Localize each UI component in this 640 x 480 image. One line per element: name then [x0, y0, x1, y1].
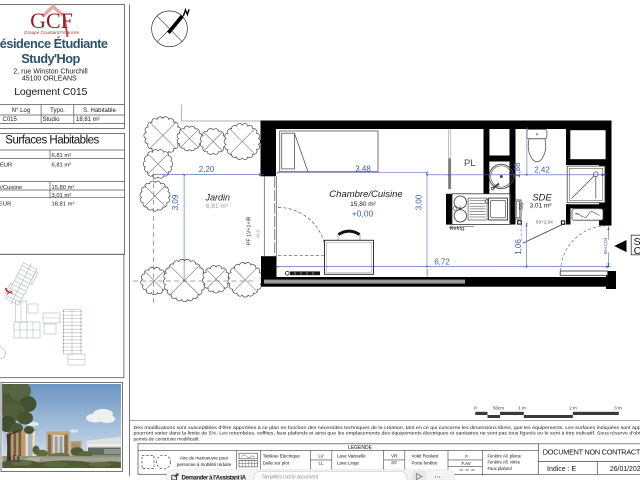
svg-text:Dalle sur plot: Dalle sur plot: [263, 460, 290, 465]
svg-text:pourront varier dans la limite: pourront varier dans la limite de 5%. Le…: [134, 431, 640, 436]
svg-text:Chambre/Cuisine: Chambre/Cuisine: [329, 189, 402, 200]
svg-text:6,81 m²: 6,81 m²: [52, 162, 72, 168]
svg-text:Des modifications sont suscept: Des modifications sont susceptibles d'êt…: [134, 425, 640, 430]
svg-text:C015: C015: [3, 117, 18, 123]
svg-text:Logement C015: Logement C015: [14, 86, 87, 98]
svg-text:1,06: 1,06: [514, 239, 523, 255]
svg-text:+0,00: +0,00: [352, 209, 374, 219]
svg-text:Jardin: Jardin: [205, 193, 231, 203]
svg-text:3,01 m²: 3,01 m²: [52, 193, 72, 199]
svg-text:93+2,04: 93+2,04: [603, 237, 608, 254]
svg-text:Volet Roulant: Volet Roulant: [412, 454, 440, 459]
svg-text:1 m: 1 m: [518, 406, 526, 411]
svg-text:DOCUMENT NON CONTRACTUEL: DOCUMENT NON CONTRACTUEL: [543, 448, 640, 457]
svg-text:Alt:0: Alt:0: [256, 229, 261, 238]
svg-text:3,09: 3,09: [171, 194, 180, 210]
svg-text:F.AV: F.AV: [462, 461, 471, 466]
svg-text:permis de construire modificat: permis de construire modificatif.: [134, 437, 200, 442]
svg-text:26/01/2024: 26/01/2024: [610, 466, 640, 473]
svg-text:LV: LV: [318, 454, 323, 459]
svg-text:3 m: 3 m: [614, 406, 622, 411]
svg-text:Studio: Studio: [43, 117, 61, 123]
svg-text:18,81 m²: 18,81 m²: [52, 202, 75, 208]
svg-text:3,48: 3,48: [355, 165, 371, 174]
svg-text:Lave Linge: Lave Linge: [337, 460, 360, 465]
svg-text:LL: LL: [318, 460, 324, 465]
svg-text:Groupe Coustant Finances: Groupe Coustant Finances: [24, 30, 80, 35]
svg-text:45100 ORLEANS: 45100 ORLEANS: [22, 76, 77, 83]
svg-text:83+2,04: 83+2,04: [536, 219, 553, 224]
svg-text:Typo.: Typo.: [50, 108, 65, 114]
svg-text:Aire de manoeuvre pour: Aire de manoeuvre pour: [180, 455, 229, 460]
svg-text:Chambre/Cuisine: Chambre/Cuisine: [0, 185, 22, 191]
svg-text:1,88: 1,88: [513, 162, 522, 178]
svg-text:15,80 m²: 15,80 m²: [52, 185, 75, 191]
svg-text:Fenêtre All. vitrée: Fenêtre All. vitrée: [488, 459, 521, 464]
svg-text:2,20: 2,20: [199, 165, 215, 174]
svg-text:...: ...: [435, 471, 441, 480]
svg-text:Fenêtre All. pleine: Fenêtre All. pleine: [488, 454, 522, 459]
svg-text:Résidence Étudiante: Résidence Étudiante: [0, 36, 108, 51]
svg-text:Simplifiez-moi le document: Simplifiez-moi le document: [262, 475, 318, 480]
svg-text:6,81 m²: 6,81 m²: [206, 203, 229, 210]
svg-text:Tableau Electrique: Tableau Electrique: [263, 454, 301, 459]
svg-text:3,00: 3,00: [415, 194, 424, 210]
svg-text:personne à mobilité réduite: personne à mobilité réduite: [177, 462, 232, 467]
svg-text:TOTAL EXTERIEUR: TOTAL EXTERIEUR: [0, 162, 12, 168]
svg-text:TOTAL INTERIEUR: TOTAL INTERIEUR: [0, 202, 11, 208]
svg-text:Porte fenêtre: Porte fenêtre: [412, 460, 439, 465]
svg-text:LEGENDE: LEGENDE: [348, 445, 373, 451]
svg-text:2,42: 2,42: [534, 166, 550, 175]
svg-text:18,81 m²: 18,81 m²: [76, 117, 100, 123]
svg-text:0: 0: [474, 406, 477, 411]
svg-text:F: F: [465, 454, 468, 459]
svg-text:PL: PL: [464, 158, 476, 169]
svg-text:6,81 m²: 6,81 m²: [52, 153, 72, 159]
svg-text:PF: PF: [391, 460, 397, 465]
svg-text:3,01 m²: 3,01 m²: [529, 203, 552, 210]
svg-text:CUI: CUI: [453, 207, 462, 213]
svg-text:C015: C015: [634, 245, 640, 257]
svg-text:15,80 m²: 15,80 m²: [350, 201, 376, 208]
svg-text:Surfaces Habitables: Surfaces Habitables: [5, 135, 99, 147]
svg-text:Lave Vaisselle: Lave Vaisselle: [337, 454, 366, 459]
svg-text:2, rue Winston Churchill: 2, rue Winston Churchill: [13, 69, 88, 76]
svg-text:6,72: 6,72: [434, 258, 450, 267]
svg-text:Faux plafond: Faux plafond: [488, 466, 513, 471]
svg-text:Demander à l'Assistant IA: Demander à l'Assistant IA: [182, 474, 247, 480]
svg-text:Study'Hop: Study'Hop: [21, 51, 80, 66]
svg-text:N° Log: N° Log: [12, 108, 30, 114]
svg-text:50cm: 50cm: [493, 406, 504, 411]
svg-text:Indice : E: Indice : E: [547, 466, 577, 473]
svg-text:SS: SS: [519, 202, 525, 210]
svg-text:2 m: 2 m: [569, 406, 577, 411]
svg-text:S. Habitable: S. Habitable: [83, 108, 116, 114]
svg-text:PF 1V+1+IR: PF 1V+1+IR: [247, 216, 253, 245]
svg-text:VR: VR: [391, 454, 398, 459]
